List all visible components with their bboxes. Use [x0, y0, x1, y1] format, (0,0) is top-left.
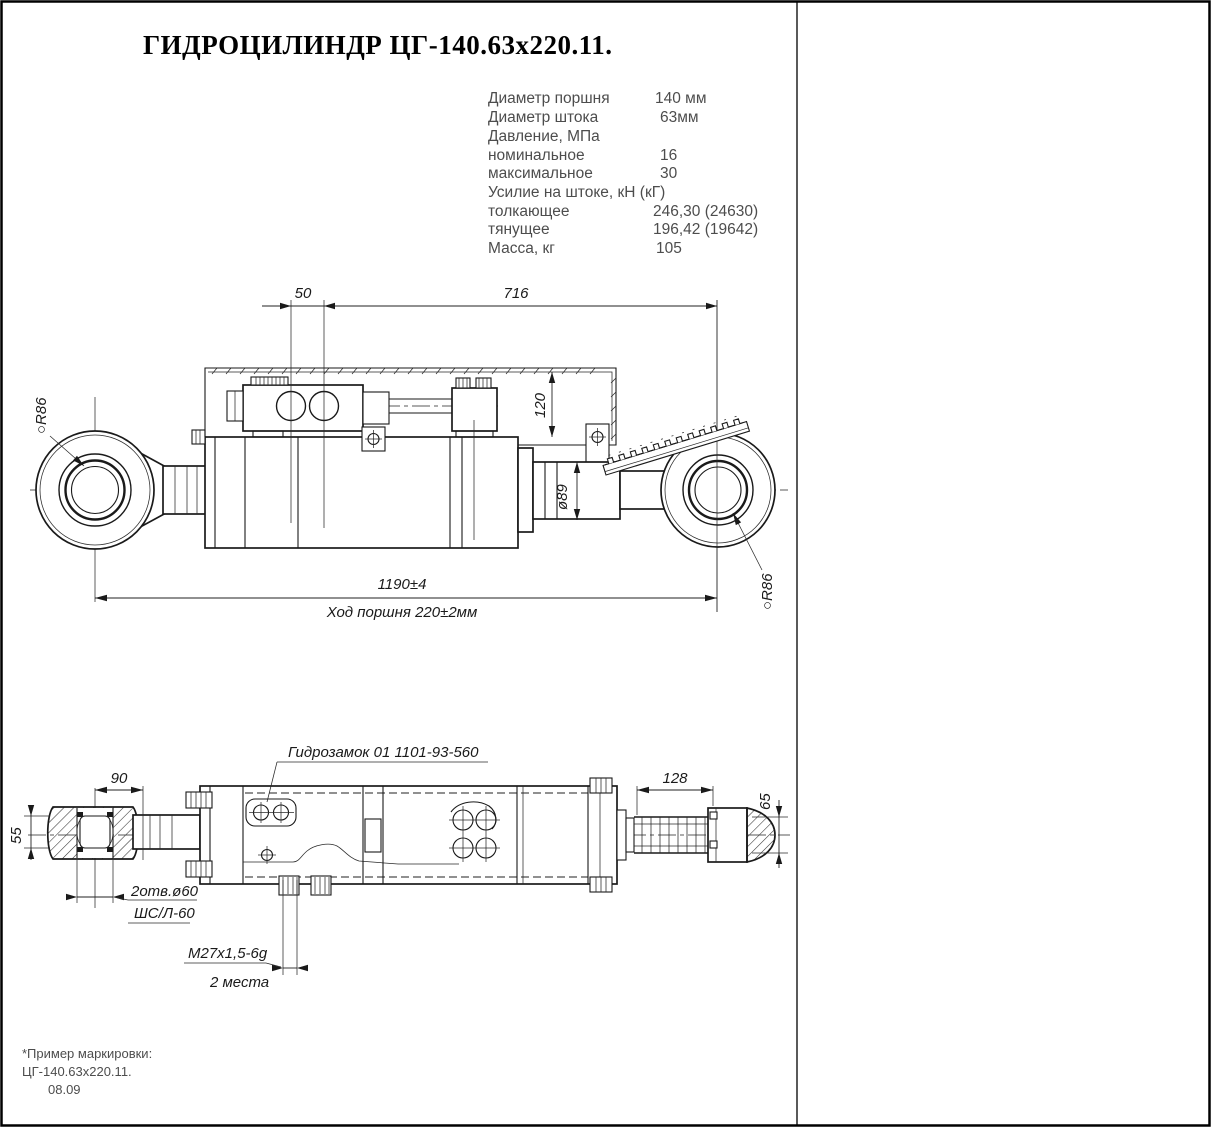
svg-text:55: 55: [8, 827, 25, 844]
spec-label: Усилие на штоке, кН (кГ): [488, 184, 665, 201]
spec-label: максимальное: [488, 165, 593, 182]
spec-label: толкающее: [488, 203, 569, 220]
note-line2: ЦГ-140.63х220.11.: [22, 1064, 132, 1079]
knurled-cap: [251, 377, 288, 385]
holes-label: 2отв.ø60: [130, 883, 199, 900]
plan-left-eye-section: [48, 807, 139, 859]
spec-value: 30: [660, 165, 678, 182]
svg-text:65: 65: [757, 793, 774, 810]
pipe-end-block: [452, 388, 497, 431]
left-eye: [36, 431, 154, 549]
spec-label: тянущее: [488, 221, 550, 238]
spec-label: Давление, МПа: [488, 128, 600, 145]
thread-label: М27х1,5-6g: [188, 945, 268, 962]
svg-text:ø89: ø89: [554, 483, 571, 510]
spec-value: 105: [656, 240, 682, 257]
mount-lug-front: [362, 427, 385, 451]
threaded-port: [279, 876, 299, 895]
spec-value: 16: [660, 147, 677, 164]
dim-50-label: 50: [295, 285, 312, 302]
svg-text:120: 120: [532, 392, 549, 418]
plan-body: [186, 778, 617, 895]
page-title: ГИДРОЦИЛИНДР ЦГ-140.63х220.11.: [143, 30, 612, 60]
r86-left-label: ○R86: [33, 397, 50, 434]
places-label: 2 места: [209, 974, 269, 991]
spec-label: Диаметр поршня: [488, 90, 610, 107]
spec-label: Диаметр штока: [488, 109, 599, 126]
svg-text:90: 90: [111, 770, 128, 787]
r86-right-label: ○R86: [759, 573, 776, 610]
drawing-canvas: ГИДРОЦИЛИНДР ЦГ-140.63х220.11. Диаметр п…: [0, 0, 1211, 1127]
cylinder-body: [192, 430, 518, 548]
left-rod: [163, 466, 207, 514]
note-line1: *Пример маркировки:: [22, 1046, 152, 1061]
spec-value: 246,30 (24630): [653, 203, 758, 220]
spec-label: номинальное: [488, 147, 585, 164]
threaded-port: [311, 876, 331, 895]
hydrolock-label: Гидрозамок 01 1101-93-560: [288, 744, 479, 761]
svg-text:128: 128: [662, 770, 688, 787]
spec-value: 196,42 (19642): [653, 221, 758, 238]
dim-1190-label: 1190±4: [378, 576, 427, 593]
note-line3: 08.09: [48, 1082, 81, 1097]
stroke-label: Ход поршня 220±2мм: [326, 604, 477, 621]
gland: [518, 448, 533, 532]
spec-label: Масса, кг: [488, 240, 555, 257]
spec-value: 63мм: [660, 109, 699, 126]
bolt-head: [186, 861, 212, 877]
bolt-head: [186, 792, 212, 808]
sheet-frame: [2, 2, 1210, 1126]
dim-716-label: 716: [503, 285, 529, 302]
spec-value: 140 мм: [655, 90, 706, 107]
bearing-label: ШС/Л-60: [134, 905, 195, 922]
